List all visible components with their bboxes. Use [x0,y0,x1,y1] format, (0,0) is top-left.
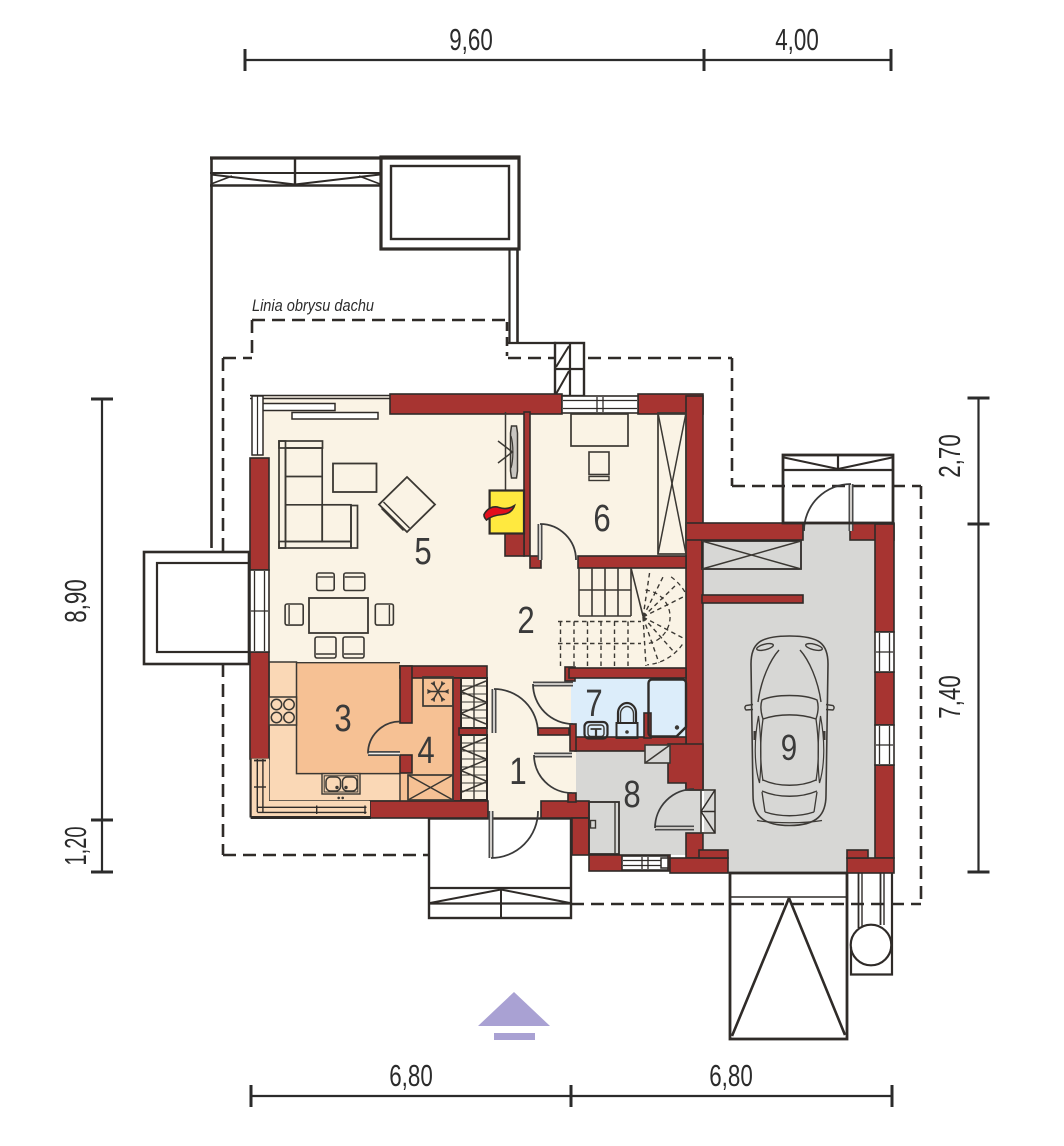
svg-text:1,20: 1,20 [58,827,93,866]
svg-text:8: 8 [623,774,640,816]
svg-text:3: 3 [334,698,351,740]
svg-text:2,70: 2,70 [932,434,967,478]
svg-text:9: 9 [781,727,797,767]
svg-text:Linia obrysu dachu: Linia obrysu dachu [252,297,374,315]
svg-text:6: 6 [593,498,610,540]
svg-text:9,60: 9,60 [449,22,493,57]
svg-text:4: 4 [417,730,434,772]
svg-text:7,40: 7,40 [932,675,967,719]
svg-text:6,80: 6,80 [389,1058,433,1093]
svg-text:5: 5 [414,531,431,573]
svg-text:8,90: 8,90 [58,579,93,623]
svg-text:6,80: 6,80 [709,1058,753,1093]
svg-text:1: 1 [509,751,526,793]
svg-text:2: 2 [517,600,534,642]
svg-text:7: 7 [585,683,602,725]
svg-text:4,00: 4,00 [775,22,819,57]
